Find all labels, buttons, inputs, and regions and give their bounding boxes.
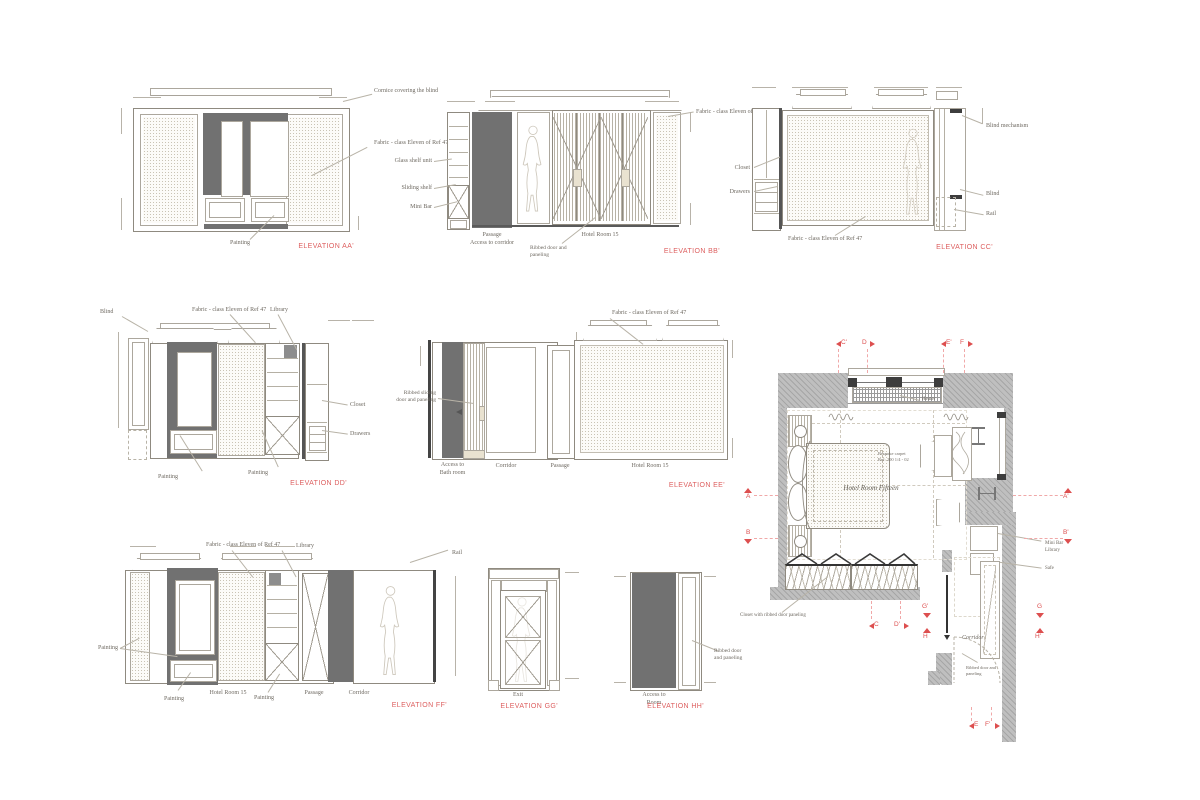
note-rail: Rail xyxy=(986,211,996,219)
side-panel xyxy=(678,573,700,690)
drawing-sheet: Cornice covering the blind Fabric - clas… xyxy=(0,0,1200,800)
desk-chair xyxy=(920,441,935,471)
cornice xyxy=(872,94,931,109)
note-fabric: Fabric - class Eleven of Ref 47 xyxy=(788,236,862,244)
elevation-hh: Ribbed door and paneling Access to Room … xyxy=(600,550,740,715)
door-leaf xyxy=(250,121,289,197)
section-marker-d: D xyxy=(862,339,867,346)
elevation-title-cc: ELEVATION CC' xyxy=(918,244,993,251)
note-blind: Blind xyxy=(100,309,113,317)
section-marker-f-prime: F' xyxy=(985,721,990,728)
door-frame xyxy=(167,568,218,685)
note-drawers: Drawers xyxy=(350,431,370,439)
door-swing-arc xyxy=(952,635,1002,685)
caption-passage: Passage Access to corridor xyxy=(462,232,522,247)
glazed-door xyxy=(500,590,546,689)
section-marker-a: A xyxy=(746,493,750,500)
painting-panel xyxy=(170,660,217,682)
window-bay xyxy=(848,368,945,376)
section-marker-h-prime: H' xyxy=(1035,633,1041,640)
wardrobe xyxy=(552,110,651,225)
section-marker-f: F xyxy=(960,339,964,346)
fabric-wall xyxy=(782,110,934,226)
fabric-panel-right xyxy=(286,114,343,226)
elevation-gg: Exit ELEVATION GG' xyxy=(470,550,595,715)
drawer xyxy=(309,442,326,451)
cornice-strip xyxy=(878,89,924,96)
side-panel xyxy=(517,112,550,224)
section-marker-b-prime: B' xyxy=(1063,529,1069,536)
fabric-panel-left xyxy=(140,114,198,226)
mini-bar-niche xyxy=(970,526,998,551)
elevation-ff: Fabric - class Eleven of Ref 47 Library … xyxy=(110,540,475,718)
safe-label: Safe xyxy=(1045,566,1054,572)
note-closet: Closet xyxy=(708,165,750,173)
caption-passage: Passage xyxy=(298,690,330,698)
mini-bar-label: Mini Bar xyxy=(1045,541,1063,547)
cornice-strip xyxy=(140,553,200,560)
cornice-strip xyxy=(800,89,846,96)
threshold xyxy=(204,224,288,229)
note-glass-shelf: Glass shelf unit xyxy=(390,158,432,166)
carpet-note: Bespoke carpet Ref: 200 1/4 - 02 xyxy=(878,451,922,463)
drawer xyxy=(755,202,778,212)
person-silhouette xyxy=(899,125,927,221)
cornice xyxy=(478,96,682,111)
wardrobe-bay xyxy=(785,564,851,590)
elevation-aa: Cornice covering the blind Fabric - clas… xyxy=(100,80,385,260)
section-marker-a-prime: A' xyxy=(1063,493,1069,500)
wall-edge xyxy=(433,570,436,682)
caption-corridor: Corridor xyxy=(335,690,383,698)
window-mullion xyxy=(886,377,902,387)
floor-plan: Heater xyxy=(740,335,1085,750)
caption-access-bath: Access to Bath room xyxy=(430,462,475,477)
door-handle xyxy=(479,406,485,421)
library-shelves xyxy=(265,343,300,418)
note-blind: Blind xyxy=(986,191,999,199)
door-panel xyxy=(177,352,212,427)
note-mini-bar: Mini Bar xyxy=(390,204,432,212)
wall-top-right xyxy=(943,373,1013,408)
note-closet: Closet xyxy=(350,402,365,410)
window-column xyxy=(128,338,149,430)
corridor-wall xyxy=(353,570,435,684)
note-ribbed: Ribbed sliding door and paneling xyxy=(396,390,436,404)
wardrobe-bay xyxy=(851,564,918,590)
elevation-title-ee: ELEVATION EE' xyxy=(650,482,725,489)
note-painting-left: Painting xyxy=(88,645,118,653)
elevation-bb: Glass shelf unit Sliding shelf Mini Bar … xyxy=(390,85,735,270)
section-marker-g: G xyxy=(1037,603,1042,610)
person-silhouette xyxy=(519,121,547,219)
passage-column xyxy=(302,573,329,681)
wall-top-left xyxy=(778,373,848,408)
door-base xyxy=(463,450,485,459)
door-leaf xyxy=(221,121,243,197)
corridor-panel xyxy=(486,347,536,453)
elevation-title-bb: ELEVATION BB' xyxy=(645,248,720,255)
elevation-title-dd: ELEVATION DD' xyxy=(272,480,347,487)
blind-box xyxy=(950,109,962,113)
elevation-title-hh: ELEVATION HH' xyxy=(644,703,704,710)
corridor-sliding-door xyxy=(946,575,948,633)
section-marker-e-prime: E' xyxy=(946,339,952,346)
cornice xyxy=(792,94,852,109)
note-painting: Painting xyxy=(230,240,250,248)
ribbed-note: Ribbed door and paneling xyxy=(966,665,1002,676)
passage-opening xyxy=(472,112,512,228)
glass-shelf-unit xyxy=(447,112,470,230)
note-fabric: Fabric - class Eleven of Ref 47 xyxy=(206,542,280,550)
corridor-jamb xyxy=(328,570,353,682)
room-opening xyxy=(632,573,676,688)
corridor-end-wall xyxy=(928,671,940,685)
section-marker-e: E xyxy=(974,721,978,728)
side-window-glazing xyxy=(999,417,1006,477)
fabric-panel xyxy=(653,112,681,224)
slide-arrow xyxy=(453,409,462,415)
caption-room: Hotel Room 15 xyxy=(620,463,680,471)
base-line xyxy=(472,225,679,227)
note-drawers: Drawers xyxy=(708,189,750,197)
door-handle xyxy=(621,169,630,187)
section-marker-d-prime: D' xyxy=(894,621,900,628)
section-marker-g-prime: G' xyxy=(922,603,928,610)
note-library: Library xyxy=(296,543,314,551)
elevation-cc: Blind mechanism Blind Rail Closet Drawer… xyxy=(740,85,1050,270)
closet-cabinet xyxy=(752,108,781,231)
corridor-label: Corridor xyxy=(962,635,984,643)
library-shelves xyxy=(265,570,299,645)
passage-column xyxy=(547,345,575,459)
caption-corridor: Corridor xyxy=(486,463,526,471)
shelf-dashed xyxy=(936,197,956,227)
painting-panel xyxy=(170,430,217,454)
note-painting: Painting xyxy=(158,474,178,482)
fabric-panel xyxy=(218,572,265,681)
section-marker-c: C xyxy=(874,621,879,628)
heater-label: Heater xyxy=(922,397,935,403)
note-fabric: Fabric - class Eleven of Ref 47 xyxy=(192,307,266,315)
note-painting: Painting xyxy=(248,695,280,703)
library-label: Library xyxy=(1045,548,1060,554)
cornice xyxy=(662,325,724,341)
section-marker-b: B xyxy=(746,529,750,536)
window-mullion xyxy=(934,378,943,387)
note-library: Library xyxy=(270,307,288,315)
door-handle xyxy=(573,169,582,187)
section-marker-h: H xyxy=(923,633,928,640)
elevation-title-aa: ELEVATION AA' xyxy=(292,243,354,250)
door-panel xyxy=(175,580,215,655)
closet-note: Closet with ribbed door paneling xyxy=(740,613,806,619)
steel-column xyxy=(978,487,996,500)
fabric-panel-left xyxy=(130,572,150,681)
desk xyxy=(934,435,952,477)
steel-column xyxy=(972,427,985,445)
elevation-ee: Access to Bath room Corridor Passage Hot… xyxy=(410,310,740,500)
note-painting: Painting xyxy=(158,696,190,704)
caption-passage: Passage xyxy=(540,463,580,471)
caption-exit: Exit xyxy=(498,692,538,700)
note-rail: Rail xyxy=(452,550,462,558)
fabric-panel xyxy=(218,344,265,456)
ribbed-sliding-door xyxy=(463,343,485,452)
window-mullion xyxy=(848,378,857,387)
plan-room-title: Hotel Room Fifteen xyxy=(828,484,914,492)
dashed-unit xyxy=(128,430,147,460)
corridor-right-wall xyxy=(1002,525,1016,742)
elevation-title-gg: ELEVATION GG' xyxy=(498,703,558,710)
console-table xyxy=(952,427,972,481)
person-silhouette xyxy=(376,583,405,681)
headboard-curve xyxy=(798,439,812,531)
door-frame xyxy=(167,342,217,458)
cabinet-x-front xyxy=(265,643,299,681)
armchair xyxy=(936,499,960,526)
wall-niche-top xyxy=(965,512,1016,525)
note-painting: Painting xyxy=(248,470,268,478)
elevation-title-ff: ELEVATION FF' xyxy=(372,702,447,709)
caption-room: Hotel Room 15 xyxy=(570,232,630,240)
room-wall xyxy=(574,340,728,460)
note-sliding-shelf: Sliding shelf xyxy=(390,185,432,193)
note-fabric: Fabric - class Eleven of Ref 47 xyxy=(612,310,686,318)
painting-panel xyxy=(205,198,245,222)
note-ribbed: Ribbed door and paneling xyxy=(530,245,576,259)
section-marker-c-prime: C' xyxy=(841,339,847,346)
note-blind-mech: Blind mechanism xyxy=(986,123,1028,131)
elevation-dd: Blind Fabric - class Eleven of Ref 47 Li… xyxy=(100,300,370,495)
